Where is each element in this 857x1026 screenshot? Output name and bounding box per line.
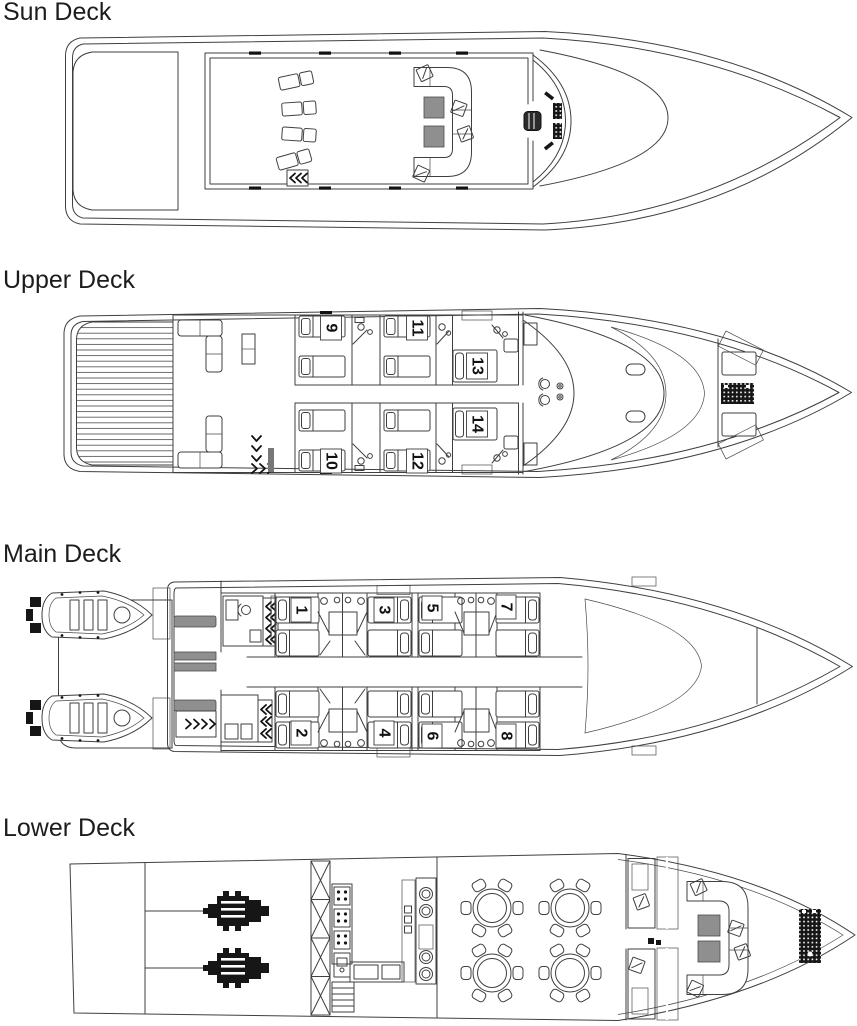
bench (174, 616, 216, 627)
u-sofa (687, 882, 748, 995)
pantry (221, 695, 258, 742)
cabin-number: 3 (374, 598, 394, 622)
dining-table (461, 943, 523, 1003)
sun-pad (722, 352, 756, 375)
main-cabins: 1 3 5 7 2 4 6 8 (275, 593, 540, 751)
anchor-windlass (799, 909, 821, 963)
bar-counter (242, 334, 255, 364)
helm-chair (539, 378, 550, 390)
dining-area (461, 878, 601, 1003)
svg-text:11: 11 (409, 320, 426, 337)
cabin-9: 9 (299, 316, 372, 377)
svg-text:10: 10 (323, 452, 340, 470)
foredeck-teak (585, 599, 702, 733)
helm-seat (524, 112, 541, 131)
helm-console (553, 103, 562, 139)
foredeck-teak (611, 327, 705, 460)
sun-lounger (282, 101, 317, 116)
svg-text:13: 13 (469, 357, 486, 375)
sun-deck-label: Sun Deck (3, 0, 111, 26)
cabin-number: 1 (291, 598, 311, 622)
bulkhead-brace (311, 861, 330, 900)
serving-counter (416, 878, 436, 984)
bench (174, 663, 216, 671)
bench (174, 700, 216, 711)
bench (174, 652, 216, 660)
ship-deck-plans: Sun Deck Upper Deck Main Deck Lower Deck (0, 0, 857, 1026)
lower-deck-label: Lower Deck (3, 814, 135, 842)
stairs-icon (287, 170, 308, 186)
boarding-ladder (377, 748, 410, 757)
bulkhead-brace (311, 938, 330, 977)
svg-text:14: 14 (469, 415, 486, 433)
aft-teak-deck (77, 322, 174, 465)
cabin-number: 12 (407, 449, 428, 473)
bow-table (721, 383, 754, 404)
svg-text:1: 1 (293, 606, 310, 615)
cabin-10: 10 (299, 410, 372, 473)
deck-hatch (626, 364, 645, 375)
dining-table (461, 878, 523, 938)
cabin-14: 14 (453, 408, 518, 463)
office (223, 596, 263, 646)
coffee-table (424, 126, 444, 147)
galley (332, 857, 437, 1018)
boarding-ladder (632, 577, 656, 586)
sun-lounger (278, 71, 314, 91)
crew-cabin (628, 859, 655, 929)
cabin-12: 12 (384, 410, 451, 473)
main-deck-label: Main Deck (3, 540, 121, 568)
bulkhead-brace (311, 977, 330, 1016)
upper-cabins: 9 11 13 10 1 (295, 312, 523, 474)
stairs-icon (332, 982, 354, 1012)
sun-helm-station (524, 55, 571, 187)
stairs-icon (252, 436, 274, 473)
cabin-number: 7 (496, 595, 516, 619)
u-sofa (413, 65, 474, 183)
deck-hatch (626, 411, 645, 422)
main-foredeck (585, 599, 757, 733)
cabin-number: 5 (422, 596, 442, 620)
main-service-area (176, 577, 656, 757)
sun-deck-plan (0, 26, 857, 238)
cabin-number: 10 (321, 449, 342, 473)
engine-room (145, 861, 330, 1015)
coffee-table (424, 97, 444, 118)
upper-salon (173, 315, 523, 473)
sun-lounger (276, 149, 312, 171)
svg-text:9: 9 (323, 324, 340, 333)
coffee-table (698, 915, 720, 936)
coffee-table (698, 941, 720, 962)
svg-text:8: 8 (498, 732, 515, 741)
aft-teak-deck (73, 52, 178, 210)
svg-text:4: 4 (376, 729, 393, 738)
engine (203, 948, 269, 988)
svg-text:3: 3 (376, 606, 393, 615)
svg-text:12: 12 (409, 452, 426, 470)
cabin-number: 4 (374, 721, 394, 745)
corner-sofa (178, 320, 222, 372)
cabin-number: 8 (496, 724, 516, 748)
bulkhead-brace (311, 900, 330, 939)
wheelhouse (523, 315, 664, 472)
sun-lounger (282, 127, 317, 142)
sun-pad (722, 413, 756, 436)
cabin-13: 13 (453, 325, 518, 382)
bathroom (492, 325, 518, 352)
bathroom (437, 444, 451, 464)
cabin-11: 11 (384, 316, 451, 377)
sun-open-deck (205, 52, 533, 190)
cabin-number: 13 (467, 353, 488, 379)
boarding-ladder (632, 746, 656, 755)
main-deck-plan: 1 3 5 7 2 4 6 8 (0, 566, 857, 766)
dining-table (539, 943, 601, 1003)
bathroom (353, 444, 372, 471)
cabin-number: 11 (407, 316, 428, 340)
svg-text:6: 6 (424, 732, 441, 741)
svg-text:7: 7 (498, 603, 515, 612)
corner-sofa (178, 416, 222, 468)
cabin-number: 6 (422, 724, 442, 748)
helm-chair (539, 394, 550, 406)
cabin-number: 9 (321, 316, 342, 340)
engine (203, 891, 269, 931)
bathroom (437, 324, 451, 344)
upper-deck-plan: 9 11 13 10 1 (0, 294, 857, 498)
crew-area (626, 855, 678, 1020)
svg-text:5: 5 (424, 604, 441, 613)
upper-deck-label: Upper Deck (3, 266, 135, 294)
cabin-number: 14 (467, 411, 488, 437)
lower-deck-plan (0, 844, 857, 1026)
cabin-number: 2 (291, 721, 311, 745)
bathroom (353, 318, 372, 345)
tender-boat (26, 694, 152, 742)
svg-text:2: 2 (293, 729, 310, 738)
tender-boat (26, 591, 152, 639)
upper-foredeck (611, 327, 763, 460)
dining-table (539, 878, 601, 938)
